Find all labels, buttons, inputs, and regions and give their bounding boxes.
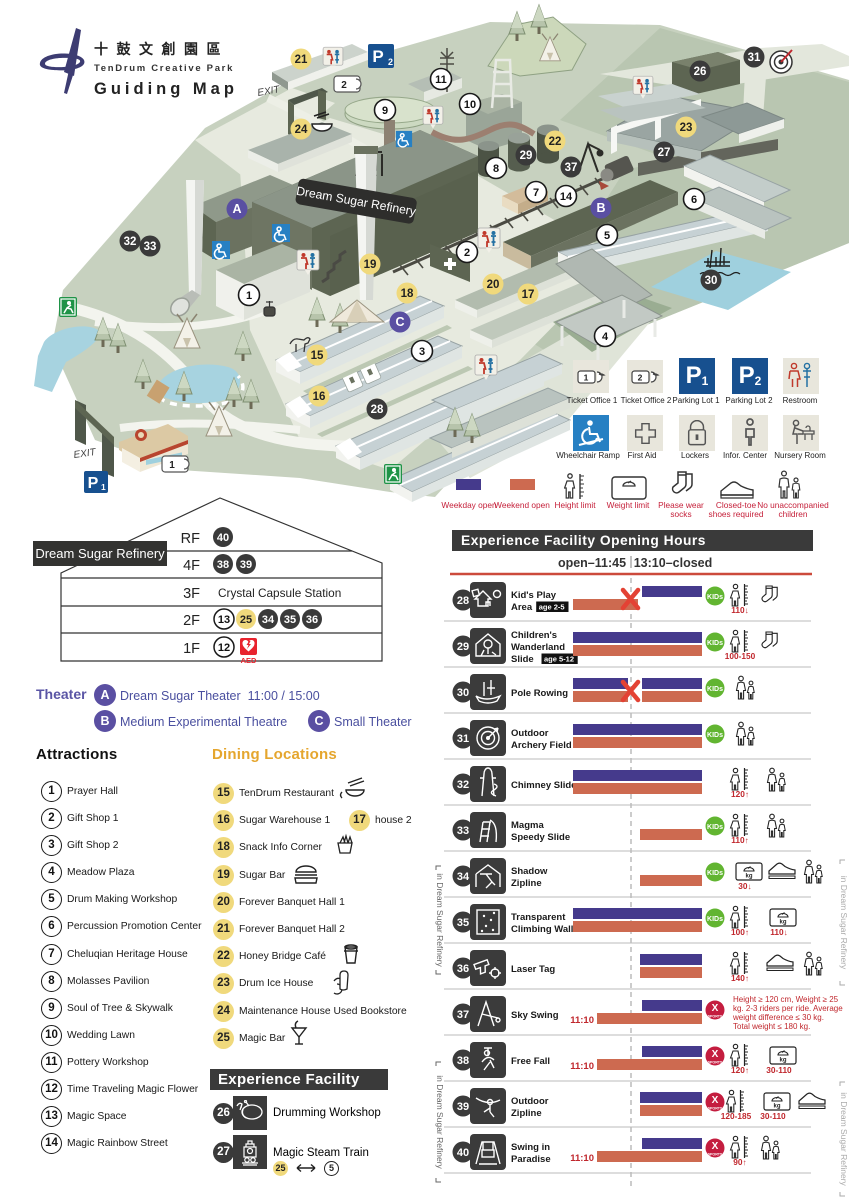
svg-text:Transparent: Transparent	[511, 912, 566, 923]
svg-text:in Dream Sugar Refinery: in Dream Sugar Refinery	[435, 873, 445, 967]
svg-text:Chimney Slide: Chimney Slide	[511, 780, 576, 791]
svg-text:KIDs: KIDs	[707, 732, 723, 739]
svg-text:40: 40	[457, 1147, 469, 1159]
svg-text:SPORTS: SPORTS	[708, 1153, 723, 1157]
svg-text:31: 31	[748, 52, 761, 64]
svg-text:30: 30	[457, 687, 469, 699]
svg-text:Children's: Children's	[511, 630, 557, 641]
svg-text:Pole Rowing: Pole Rowing	[511, 688, 568, 699]
svg-text:Shadow: Shadow	[511, 866, 548, 877]
svg-text:32: 32	[457, 779, 469, 791]
svg-text:B: B	[596, 201, 605, 215]
svg-text:30-110: 30-110	[760, 1111, 786, 1121]
svg-text:Experience Facility Opening Ho: Experience Facility Opening Hours	[461, 533, 706, 548]
svg-text:4: 4	[602, 331, 609, 343]
svg-text:120↑: 120↑	[731, 1065, 749, 1075]
svg-text:11:10: 11:10	[570, 1061, 594, 1072]
svg-text:11:10: 11:10	[570, 1153, 594, 1164]
svg-text:Speedy Slide: Speedy Slide	[511, 832, 570, 843]
svg-text:2: 2	[638, 372, 643, 382]
svg-text:30-110: 30-110	[766, 1065, 792, 1075]
svg-text:39: 39	[457, 1101, 469, 1113]
svg-text:in Dream Sugar Refinery: in Dream Sugar Refinery	[839, 876, 849, 970]
svg-text:110↓: 110↓	[731, 605, 749, 615]
svg-text:10: 10	[464, 99, 476, 111]
svg-text:Zipline: Zipline	[511, 878, 542, 889]
svg-text:31: 31	[457, 733, 469, 745]
svg-text:X: X	[712, 1049, 719, 1060]
svg-text:Outdoor: Outdoor	[511, 1096, 549, 1107]
svg-text:8: 8	[493, 163, 499, 175]
svg-text:37: 37	[457, 1009, 469, 1021]
svg-text:KIDs: KIDs	[707, 640, 723, 647]
svg-text:30↓: 30↓	[738, 881, 751, 891]
svg-text:X: X	[712, 1095, 719, 1106]
svg-text:kg. 2-3 riders per ride. Avera: kg. 2-3 riders per ride. Average	[733, 1004, 843, 1013]
svg-text:KIDs: KIDs	[707, 824, 723, 831]
svg-text:110↓: 110↓	[770, 927, 788, 937]
svg-text:29: 29	[520, 150, 533, 162]
svg-text:33: 33	[457, 825, 469, 837]
svg-text:open–11:45: open–11:45	[558, 556, 626, 570]
svg-text:age 5-12: age 5-12	[544, 655, 574, 664]
svg-text:90↑: 90↑	[733, 1157, 746, 1167]
svg-text:Sky Swing: Sky Swing	[511, 1010, 559, 1021]
svg-text:Archery Field: Archery Field	[511, 740, 572, 751]
svg-text:100-150: 100-150	[725, 651, 756, 661]
svg-text:Climbing Wall: Climbing Wall	[511, 924, 573, 935]
svg-text:34: 34	[457, 871, 470, 883]
svg-text:120↑: 120↑	[731, 789, 749, 799]
svg-text:Area: Area	[511, 602, 533, 613]
svg-text:29: 29	[457, 641, 469, 653]
svg-text:26: 26	[694, 66, 707, 78]
svg-text:6: 6	[691, 194, 697, 206]
svg-text:Swing in: Swing in	[511, 1142, 550, 1153]
svg-text:11:10: 11:10	[570, 1015, 594, 1026]
svg-text:28: 28	[457, 595, 469, 607]
svg-text:37: 37	[565, 162, 578, 174]
svg-text:22: 22	[549, 136, 562, 148]
svg-text:17: 17	[522, 289, 535, 301]
svg-text:Total weight ≤ 180 kg.: Total weight ≤ 180 kg.	[733, 1022, 810, 1031]
svg-text:120-185: 120-185	[721, 1111, 752, 1121]
svg-text:20: 20	[487, 279, 500, 291]
svg-text:23: 23	[680, 122, 693, 134]
svg-text:110↑: 110↑	[731, 835, 749, 845]
svg-text:SPORTS: SPORTS	[708, 1015, 723, 1019]
svg-text:Kid's Play: Kid's Play	[511, 590, 557, 601]
svg-text:36: 36	[457, 963, 469, 975]
svg-text:38: 38	[457, 1055, 469, 1067]
svg-text:35: 35	[457, 917, 469, 929]
svg-text:KIDs: KIDs	[707, 686, 723, 693]
svg-text:30: 30	[705, 275, 718, 287]
svg-text:KIDs: KIDs	[707, 594, 723, 601]
svg-text:Zipline: Zipline	[511, 1108, 542, 1119]
svg-text:Laser Tag: Laser Tag	[511, 964, 555, 975]
svg-text:SPORTS: SPORTS	[708, 1107, 723, 1111]
svg-text:KIDs: KIDs	[707, 916, 723, 923]
svg-text:X: X	[712, 1141, 719, 1152]
svg-text:14: 14	[560, 191, 573, 203]
svg-text:100↑: 100↑	[731, 927, 749, 937]
svg-text:weight difference ≤ 30 kg.: weight difference ≤ 30 kg.	[732, 1013, 824, 1022]
svg-text:Free Fall: Free Fall	[511, 1056, 550, 1067]
svg-text:in Dream Sugar Refinery: in Dream Sugar Refinery	[435, 1075, 445, 1169]
svg-text:Paradise: Paradise	[511, 1154, 551, 1165]
svg-text:X: X	[712, 1003, 719, 1014]
svg-text:Wanderland: Wanderland	[511, 642, 565, 653]
svg-text:in Dream Sugar Refinery: in Dream Sugar Refinery	[839, 1092, 849, 1186]
svg-text:KIDs: KIDs	[707, 870, 723, 877]
svg-text:Magma: Magma	[511, 820, 544, 831]
svg-text:7: 7	[533, 187, 539, 199]
svg-text:Slide: Slide	[511, 654, 534, 665]
svg-text:SPORTS: SPORTS	[708, 1061, 723, 1065]
svg-text:age 2-5: age 2-5	[539, 603, 565, 612]
svg-text:2: 2	[464, 247, 470, 259]
svg-text:140↑: 140↑	[731, 973, 749, 983]
svg-text:Outdoor: Outdoor	[511, 728, 549, 739]
svg-text:13:10–closed: 13:10–closed	[634, 556, 713, 570]
svg-text:Height ≥ 120 cm, Weight ≥ 25: Height ≥ 120 cm, Weight ≥ 25	[733, 995, 839, 1004]
svg-text:27: 27	[658, 147, 671, 159]
svg-text:1: 1	[584, 372, 589, 382]
svg-text:5: 5	[604, 230, 610, 242]
